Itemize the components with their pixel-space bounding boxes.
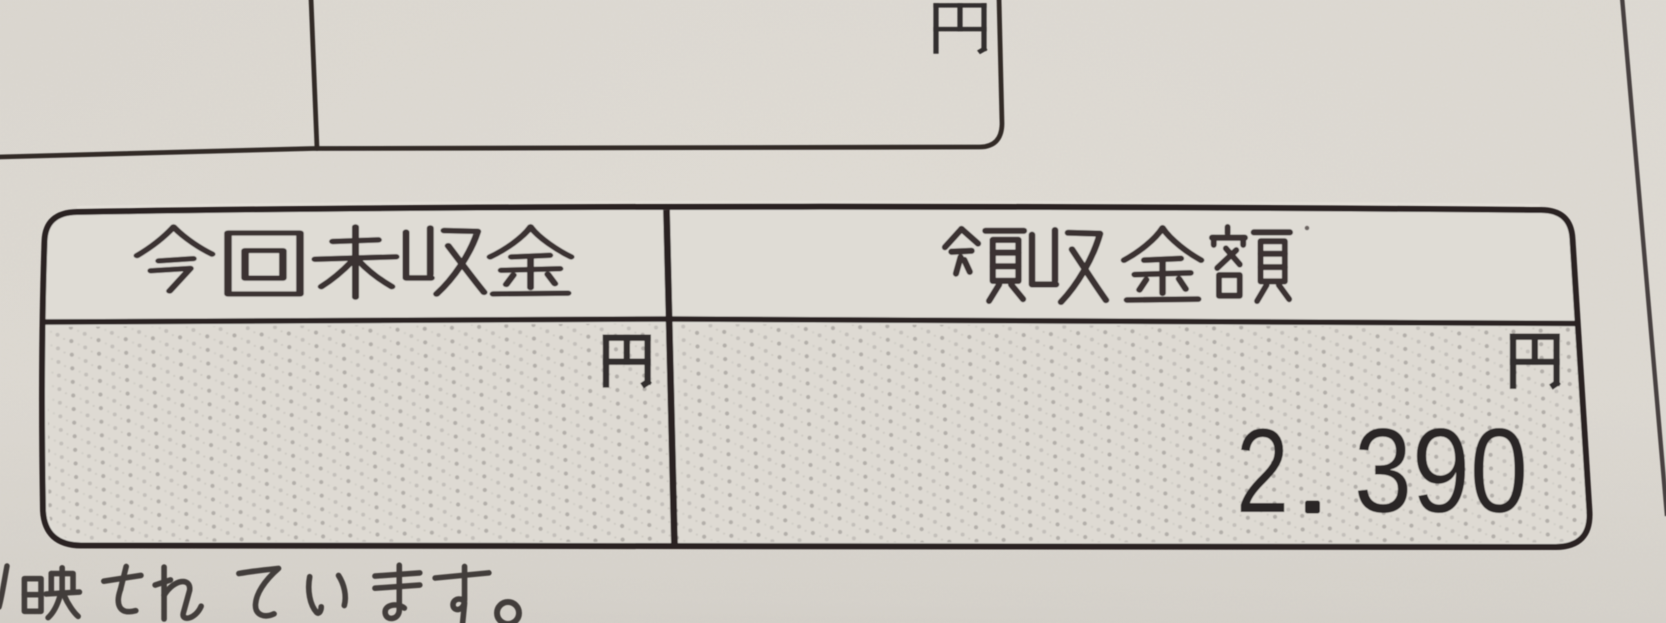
svg-text:2: 2 — [1236, 404, 1289, 538]
svg-text:390: 390 — [1354, 404, 1528, 538]
